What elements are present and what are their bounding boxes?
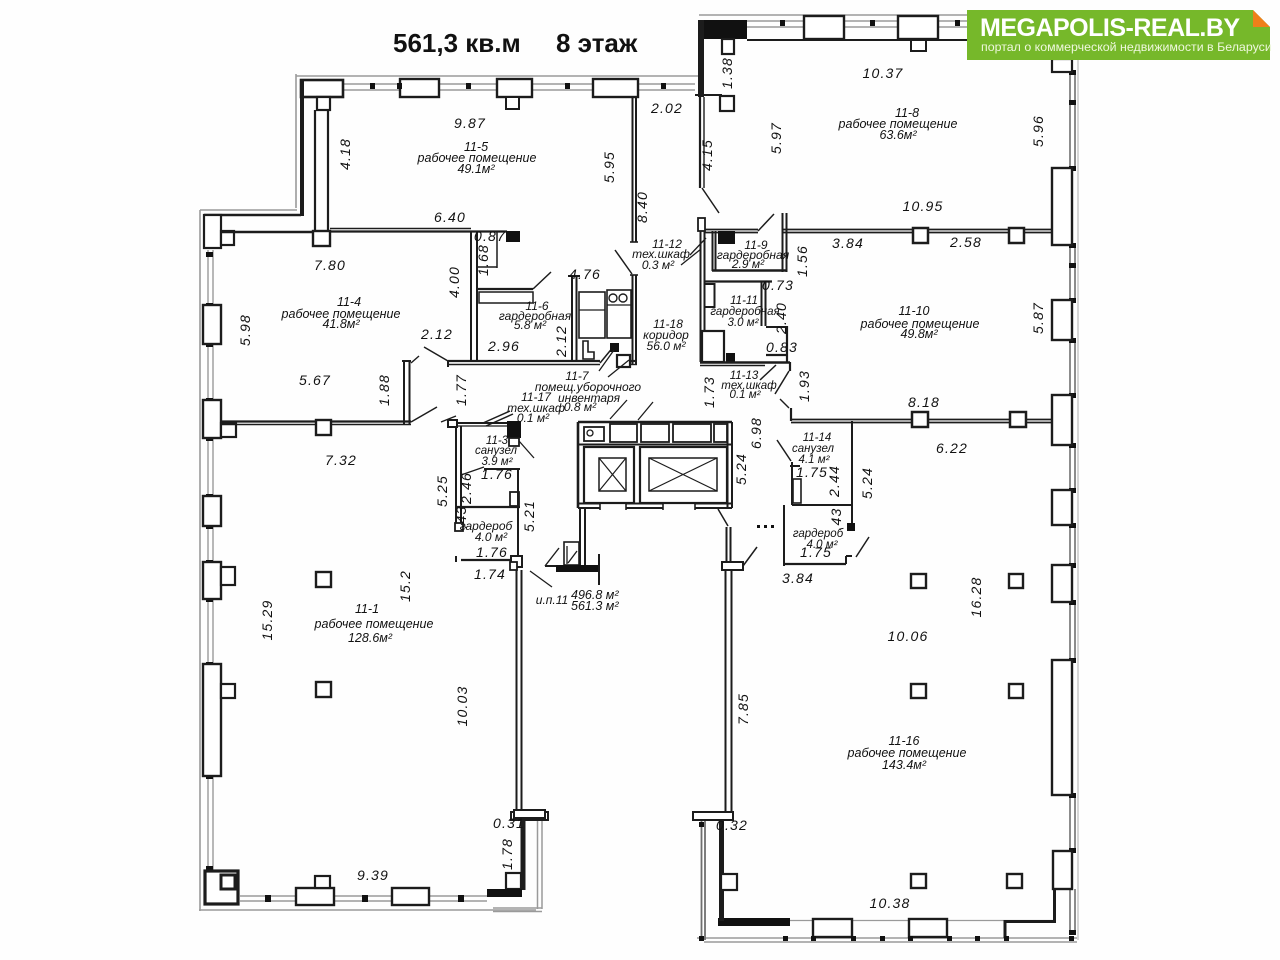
svg-text:0.1 м²: 0.1 м²: [517, 411, 550, 425]
svg-text:15.2: 15.2: [397, 570, 413, 602]
svg-text:5.98: 5.98: [237, 314, 253, 346]
svg-text:2.9 м²: 2.9 м²: [731, 257, 765, 271]
svg-text:0.8 м²: 0.8 м²: [564, 400, 597, 414]
svg-text:561,3 кв.м: 561,3 кв.м: [393, 28, 521, 58]
svg-text:5.87: 5.87: [1030, 302, 1046, 334]
svg-text:4.18: 4.18: [337, 138, 353, 170]
svg-text:11-1: 11-1: [355, 602, 379, 616]
svg-text:5.67: 5.67: [299, 372, 331, 388]
svg-text:3.84: 3.84: [832, 235, 864, 251]
svg-text:9.39: 9.39: [357, 867, 389, 883]
svg-text:10.06: 10.06: [887, 628, 928, 644]
svg-text:4.00: 4.00: [446, 266, 462, 298]
svg-text:5.96: 5.96: [1030, 115, 1046, 147]
svg-text:10.37: 10.37: [862, 65, 903, 81]
svg-text:4.15: 4.15: [699, 139, 715, 171]
svg-text:0.1 м²: 0.1 м²: [730, 389, 762, 401]
svg-text:0.31: 0.31: [493, 815, 525, 831]
svg-text:3.0 м²: 3.0 м²: [728, 317, 760, 329]
svg-text:143.4м²: 143.4м²: [882, 758, 927, 772]
svg-text:1.68: 1.68: [475, 244, 491, 276]
svg-text:1.73: 1.73: [701, 376, 717, 408]
svg-text:1.76: 1.76: [481, 466, 513, 482]
svg-text:1.77: 1.77: [453, 374, 469, 406]
svg-text:.43: .43: [828, 507, 844, 530]
svg-text:56.0 м²: 56.0 м²: [647, 339, 687, 353]
svg-text:0.87: 0.87: [474, 228, 506, 244]
svg-text:2.96: 2.96: [487, 338, 520, 354]
svg-text:1.56: 1.56: [794, 245, 810, 277]
svg-text:1.93: 1.93: [796, 370, 812, 402]
svg-text:6.22: 6.22: [936, 440, 968, 456]
svg-text:2.44: 2.44: [826, 465, 842, 498]
svg-text:6.98: 6.98: [748, 417, 764, 449]
svg-text:49.1м²: 49.1м²: [457, 162, 495, 176]
svg-text:2.12: 2.12: [420, 326, 453, 342]
svg-text:.43: .43: [453, 505, 469, 528]
svg-text:5.95: 5.95: [601, 151, 617, 183]
svg-text:7.32: 7.32: [325, 452, 357, 468]
svg-text:4.76: 4.76: [569, 266, 601, 282]
svg-text:5.97: 5.97: [768, 122, 784, 154]
svg-text:11-10: 11-10: [898, 304, 929, 318]
svg-text:1.76: 1.76: [476, 544, 508, 560]
svg-text:561.3 м²: 561.3 м²: [571, 599, 619, 613]
svg-text:8.18: 8.18: [908, 394, 940, 410]
svg-text:7.80: 7.80: [314, 257, 346, 273]
svg-text:63.6м²: 63.6м²: [879, 128, 917, 142]
svg-text:0.32: 0.32: [716, 817, 748, 833]
svg-text:9.87: 9.87: [454, 115, 486, 131]
svg-text:1.88: 1.88: [376, 374, 392, 406]
svg-text:5.24: 5.24: [733, 453, 749, 485]
svg-text:рабочее помещение: рабочее помещение: [314, 617, 434, 631]
svg-text:0.3 м²: 0.3 м²: [642, 258, 675, 272]
svg-text:1.38: 1.38: [719, 57, 735, 89]
svg-text:1.74: 1.74: [474, 566, 506, 582]
svg-text:5.24: 5.24: [859, 467, 875, 499]
svg-text:1.78: 1.78: [499, 838, 515, 870]
svg-text:3.84: 3.84: [782, 570, 814, 586]
svg-text:2.40: 2.40: [773, 302, 789, 335]
svg-text:10.95: 10.95: [902, 198, 943, 214]
svg-text:10.38: 10.38: [869, 895, 910, 911]
svg-text:8 этаж: 8 этаж: [556, 28, 638, 58]
svg-text:2.58: 2.58: [949, 234, 982, 250]
svg-text:128.6м²: 128.6м²: [348, 631, 393, 645]
svg-text:4.0 м²: 4.0 м²: [475, 530, 508, 544]
svg-text:0.83: 0.83: [766, 339, 798, 355]
svg-text:2.12: 2.12: [553, 325, 569, 358]
svg-text:8.40: 8.40: [634, 191, 650, 223]
svg-text:2.46: 2.46: [458, 472, 474, 505]
svg-text:MEGAPOLIS-REAL.BY: MEGAPOLIS-REAL.BY: [980, 14, 1240, 42]
svg-text:15.29: 15.29: [259, 599, 275, 640]
svg-text:5.8 м²: 5.8 м²: [514, 318, 547, 332]
svg-text:и.п.11: и.п.11: [536, 593, 568, 607]
svg-text:5.21: 5.21: [521, 500, 537, 532]
svg-text:16.28: 16.28: [968, 576, 984, 617]
svg-text:0.73: 0.73: [762, 277, 794, 293]
svg-text:6.40: 6.40: [434, 209, 466, 225]
svg-text:49.8м²: 49.8м²: [900, 327, 938, 341]
svg-text:7.85: 7.85: [735, 693, 751, 725]
svg-text:портал о коммерческой недвижим: портал о коммерческой недвижимости в Бел…: [981, 40, 1272, 54]
svg-text:1.75: 1.75: [796, 464, 828, 480]
svg-text:1.75: 1.75: [800, 544, 832, 560]
svg-text:41.8м²: 41.8м²: [322, 317, 360, 331]
svg-text:10.03: 10.03: [454, 685, 470, 726]
svg-text:5.25: 5.25: [434, 475, 450, 507]
svg-text:2.02: 2.02: [650, 100, 683, 116]
